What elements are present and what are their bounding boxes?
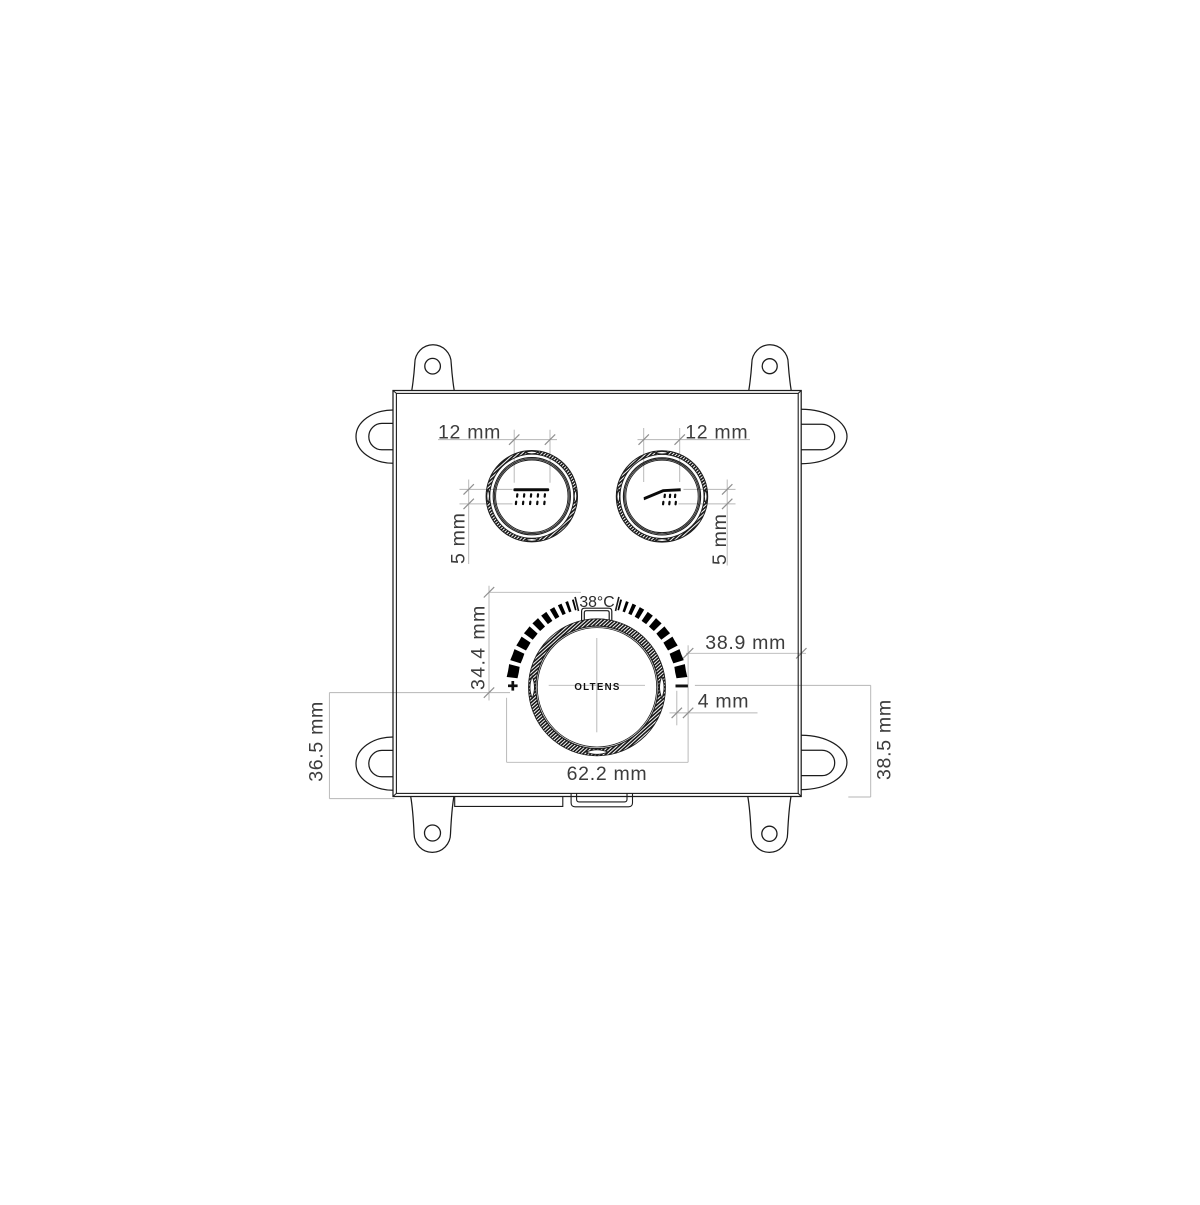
svg-text:5 mm: 5 mm [448, 512, 470, 564]
svg-text:4 mm: 4 mm [698, 691, 750, 713]
svg-text:36.5 mm: 36.5 mm [306, 701, 328, 782]
svg-text:12 mm: 12 mm [685, 422, 748, 444]
svg-text:38.5 mm: 38.5 mm [873, 699, 895, 780]
svg-text:62.2 mm: 62.2 mm [567, 763, 648, 785]
svg-text:OLTENS: OLTENS [574, 682, 620, 693]
svg-text:38.9 mm: 38.9 mm [705, 632, 786, 654]
svg-text:12 mm: 12 mm [438, 422, 501, 444]
svg-text:34.4 mm: 34.4 mm [468, 604, 490, 690]
svg-text:5 mm: 5 mm [709, 513, 731, 565]
